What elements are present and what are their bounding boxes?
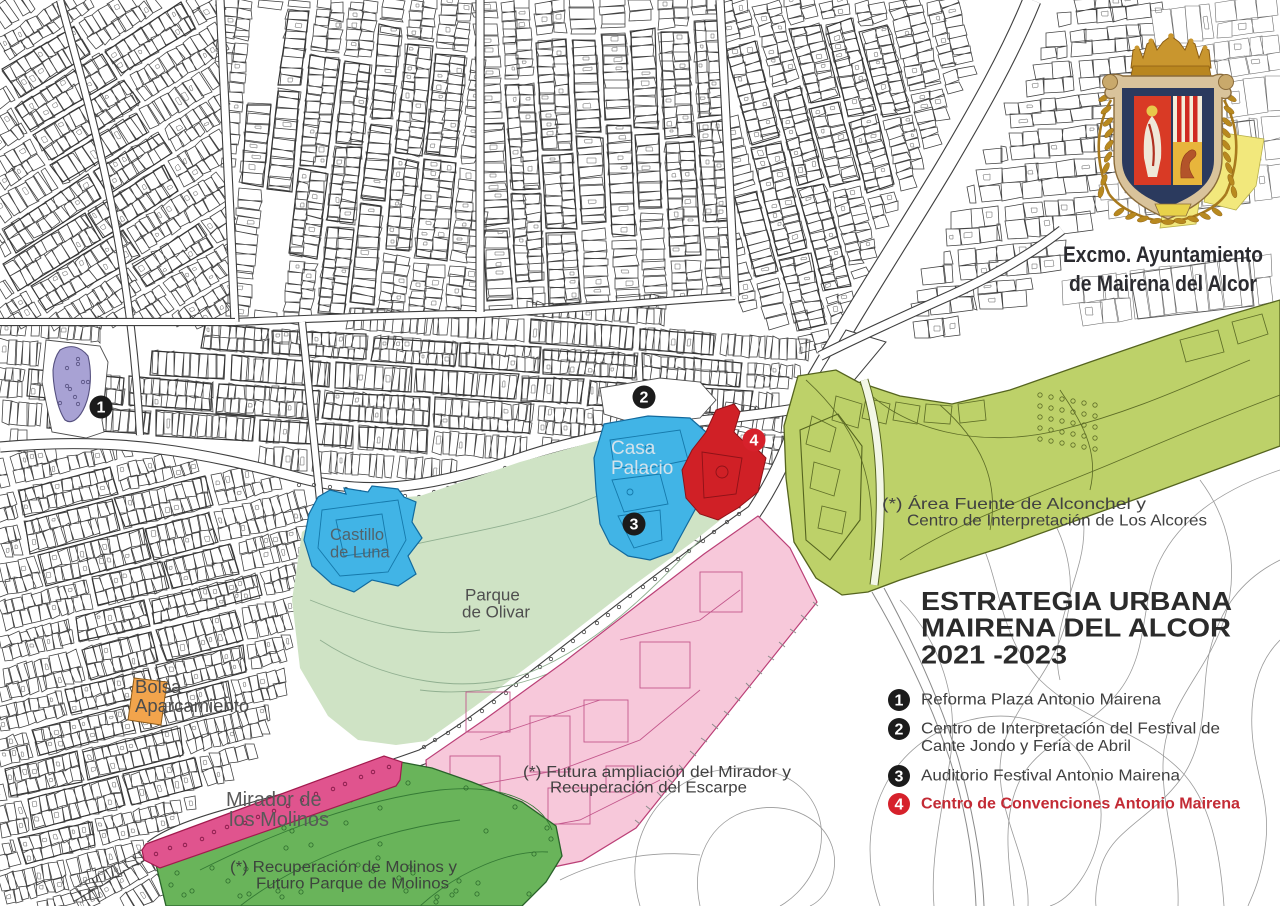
svg-text:2: 2 (640, 390, 649, 407)
svg-text:(*) Futura ampliación del Mira: (*) Futura ampliación del Mirador y (523, 764, 791, 781)
svg-text:Auditorio Festival Antonio Mai: Auditorio Festival Antonio Mairena (921, 768, 1180, 785)
svg-text:Reforma Plaza Antonio Mairena: Reforma Plaza Antonio Mairena (921, 692, 1161, 709)
svg-text:(*) Recuperación de Molinos y: (*) Recuperación de Molinos y (230, 859, 457, 876)
svg-text:1: 1 (97, 400, 106, 417)
svg-text:Aparcamiento: Aparcamiento (135, 695, 249, 716)
svg-text:(*) Área Fuente de Alconchel y: (*) Área Fuente de Alconchel y (882, 494, 1146, 513)
svg-text:4: 4 (750, 433, 759, 450)
svg-text:Centro de Convenciones Antonio: Centro de Convenciones Antonio Mairena (921, 796, 1240, 813)
svg-text:de Luna: de Luna (330, 544, 390, 562)
svg-text:Castillo: Castillo (330, 526, 384, 544)
svg-text:Bolsa: Bolsa (135, 676, 182, 697)
svg-text:Recuperación del Escarpe: Recuperación del Escarpe (550, 780, 747, 797)
svg-text:Palacio: Palacio (611, 458, 673, 479)
svg-text:1: 1 (895, 693, 904, 710)
svg-text:3: 3 (630, 517, 639, 534)
svg-text:4: 4 (895, 797, 904, 814)
svg-text:de Olivar: de Olivar (462, 603, 530, 622)
svg-text:Centro de Interpretación de Lo: Centro de Interpretación de Los Alcores (907, 513, 1207, 530)
svg-text:Casa: Casa (611, 438, 656, 459)
svg-text:2: 2 (895, 722, 904, 739)
svg-text:Futuro Parque de Molinos: Futuro Parque de Molinos (256, 876, 449, 893)
svg-text:los Molinos: los Molinos (229, 809, 329, 831)
svg-text:Mirador de: Mirador de (226, 789, 322, 811)
svg-text:3: 3 (895, 769, 904, 786)
